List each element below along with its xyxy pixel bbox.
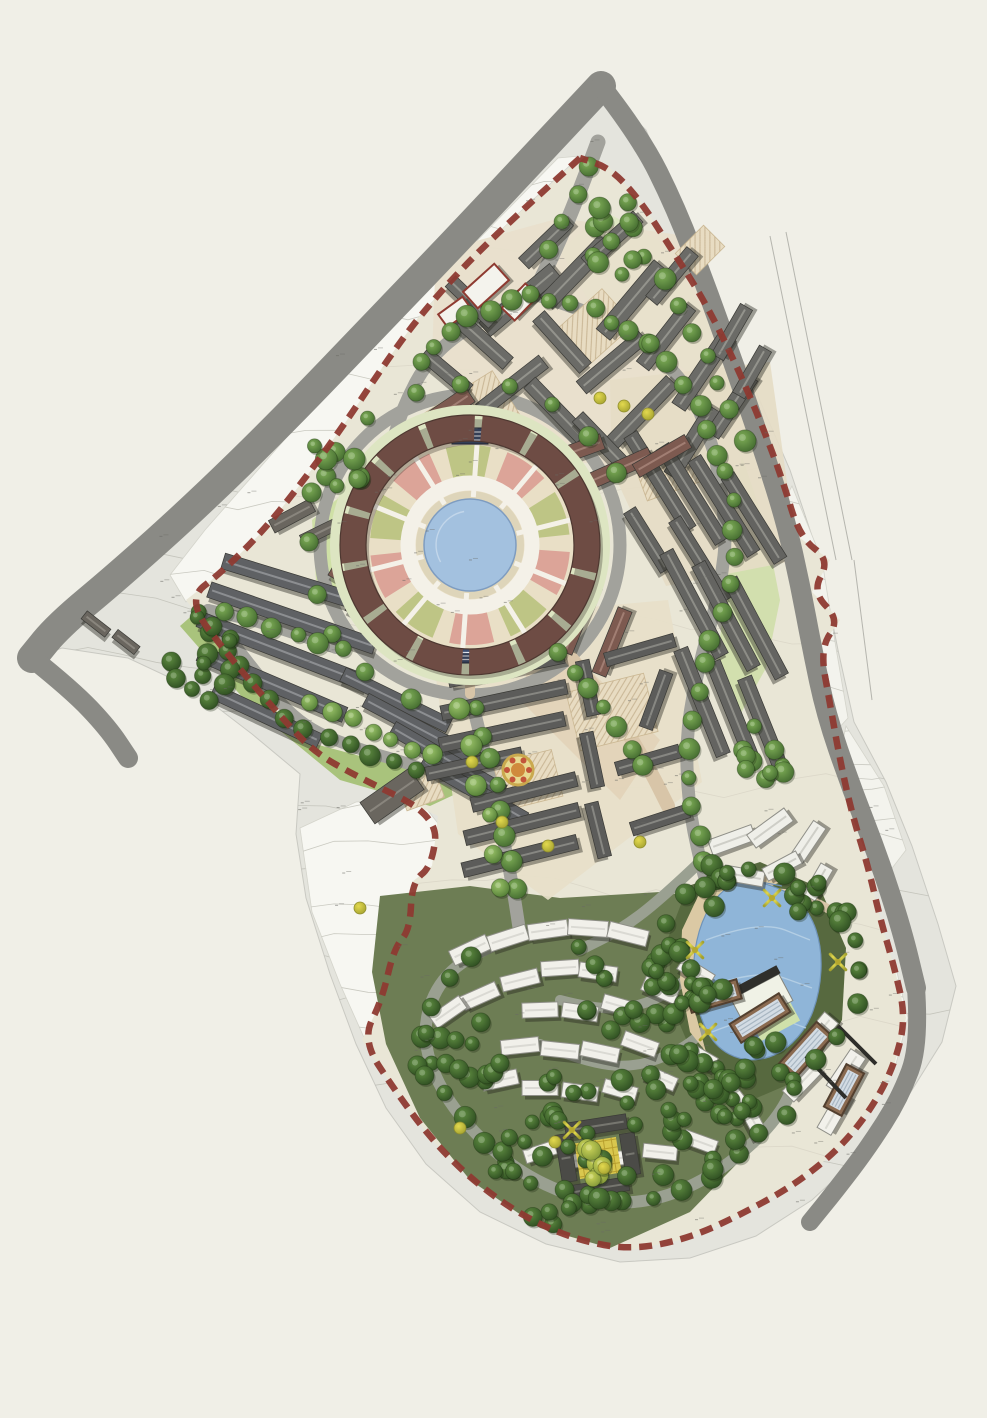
spot-marker-label [705, 576, 710, 577]
tree-highlight [664, 1105, 669, 1110]
tree-crown [200, 691, 218, 709]
tree-crown [342, 736, 359, 753]
spot-marker [655, 443, 658, 444]
spot-marker [356, 707, 359, 708]
spot-marker [499, 1130, 502, 1131]
spot-marker-label [826, 1069, 831, 1070]
spot-marker-label [305, 661, 310, 662]
tree-crown [717, 463, 733, 479]
spot-marker [337, 807, 340, 808]
spot-marker-label [559, 424, 564, 425]
tree-crown [491, 1054, 509, 1072]
tree-highlight [429, 342, 434, 347]
tree-highlight [695, 830, 701, 836]
tree-highlight [557, 217, 562, 222]
tree-crown [669, 1045, 688, 1064]
spot-marker [425, 1040, 428, 1041]
tree-crown [741, 862, 756, 877]
tree-crown [681, 770, 696, 785]
tree-highlight [618, 270, 623, 275]
central-plaza [330, 405, 610, 685]
spot-marker-label [728, 1018, 733, 1019]
spot-marker-label [398, 659, 403, 660]
tree-crown [162, 652, 181, 671]
tree-crown [482, 807, 497, 822]
tree-crown [699, 630, 720, 651]
tree-highlight [695, 686, 701, 692]
tree-highlight [348, 712, 354, 718]
tree-highlight [730, 1133, 736, 1139]
tree-highlight [360, 666, 366, 672]
flower-petal [510, 777, 516, 783]
tree-highlight [166, 656, 172, 662]
spot-marker [546, 925, 549, 926]
tree-highlight [753, 1127, 759, 1133]
tree-highlight [775, 1067, 781, 1073]
palm-tree [697, 1021, 719, 1043]
tree-crown [695, 653, 715, 673]
tree-highlight [713, 378, 718, 383]
spot-marker [801, 985, 804, 986]
spot-marker-label [550, 923, 555, 924]
spot-marker-label [332, 649, 337, 650]
spot-marker [183, 612, 186, 613]
tree-highlight [461, 309, 468, 316]
spot-marker-label [473, 371, 478, 372]
yellow-tree [466, 756, 478, 768]
tree-highlight [497, 1145, 503, 1151]
spot-marker-label [455, 610, 460, 611]
tree-highlight [766, 768, 771, 773]
spot-marker [680, 610, 683, 611]
spot-marker-label [568, 993, 573, 994]
spot-marker [396, 751, 399, 752]
tree-highlight [769, 744, 775, 750]
spot-marker-label [364, 728, 369, 729]
tree-highlight [491, 1167, 496, 1172]
tree-crown [646, 1080, 666, 1100]
tree-crown [734, 430, 756, 452]
spot-marker [546, 282, 549, 283]
tree-highlight [650, 1008, 656, 1014]
tree-highlight [583, 430, 589, 436]
tree-crown [359, 745, 380, 766]
tree-highlight [621, 1170, 627, 1176]
tree-highlight [623, 197, 629, 203]
tree-crown [762, 765, 777, 780]
tree-crown [589, 197, 611, 219]
tree-highlight [678, 379, 684, 385]
tree-crown [726, 548, 743, 565]
tree-highlight [445, 972, 451, 978]
tree-crown [786, 1080, 801, 1095]
yellow-tree [354, 902, 366, 914]
tree-highlight [726, 1077, 732, 1083]
spot-marker-label [643, 1025, 648, 1026]
spot-marker-label [410, 649, 415, 650]
spot-marker-label [724, 349, 729, 350]
spot-marker-label [844, 952, 849, 953]
tree-crown [323, 702, 342, 721]
tree-crown [586, 299, 604, 317]
tree-crown [441, 969, 458, 986]
tree-crown [541, 1204, 557, 1220]
spot-marker [725, 891, 728, 892]
spot-marker [796, 1201, 799, 1202]
tree-crown [828, 1028, 845, 1045]
spot-marker [549, 1069, 552, 1070]
spot-marker [765, 432, 768, 433]
building [522, 1002, 562, 1022]
spot-marker-label [530, 199, 535, 200]
tree-crown [578, 1001, 596, 1019]
spot-marker [469, 373, 472, 374]
tree-highlight [412, 765, 417, 770]
spot-marker-label [644, 682, 649, 683]
spot-marker-label [558, 1121, 563, 1122]
tree-highlight [616, 1073, 623, 1080]
tree-crown [697, 420, 716, 439]
tree-crown [602, 1021, 621, 1040]
spot-marker-label [668, 1071, 673, 1072]
tree-highlight [495, 882, 501, 888]
tree-highlight [451, 1035, 456, 1040]
tree-highlight [225, 663, 231, 669]
tree-crown [722, 520, 742, 540]
tree-highlight [353, 473, 359, 479]
tree-highlight [673, 1048, 679, 1054]
flower-center [511, 763, 525, 777]
spot-marker-label [403, 944, 408, 945]
spot-marker [402, 580, 405, 581]
spot-marker-label [425, 975, 430, 976]
spot-marker-label [346, 871, 351, 872]
tree-highlight [674, 301, 679, 306]
tree-crown [484, 845, 502, 863]
tree-highlight [781, 1109, 787, 1115]
tree-highlight [745, 1097, 750, 1102]
tree-highlight [699, 657, 705, 663]
spot-marker [480, 597, 483, 598]
spot-marker [701, 856, 704, 857]
spot-marker [840, 953, 843, 954]
tree-highlight [484, 752, 490, 758]
tree-highlight [680, 1115, 685, 1120]
spot-marker [342, 873, 345, 874]
spot-marker [640, 683, 643, 684]
tree-highlight [675, 1184, 682, 1191]
spot-marker-label [679, 774, 684, 775]
spot-marker-label [421, 382, 426, 383]
tree-crown [700, 348, 715, 363]
spot-marker [703, 1101, 706, 1102]
spot-marker-label [163, 534, 168, 535]
spot-marker [159, 536, 162, 537]
tree-highlight [493, 780, 498, 785]
tree-crown [618, 400, 630, 412]
tree-crown [617, 1166, 636, 1185]
tree-crown [745, 1037, 763, 1055]
tree-crown [633, 755, 653, 775]
spot-marker-label [267, 568, 272, 569]
tree-highlight [202, 647, 209, 654]
tree-highlight [687, 327, 693, 333]
tree-crown [426, 339, 441, 354]
tree-highlight [327, 629, 333, 635]
plaza-pond [424, 499, 516, 591]
spot-marker-label [589, 728, 594, 729]
tree-crown [491, 879, 509, 897]
tree-crown [646, 1191, 660, 1205]
palm-tree [761, 887, 783, 909]
spot-marker [437, 604, 440, 605]
tree-highlight [478, 1136, 485, 1143]
tree-highlight [814, 878, 819, 883]
tree-highlight [472, 703, 477, 708]
tree-highlight [509, 1166, 514, 1171]
tree-highlight [730, 551, 736, 557]
flower-circle [503, 755, 533, 785]
spot-marker-label [305, 801, 310, 802]
spot-marker-label [833, 633, 838, 634]
tree-crown [302, 483, 321, 502]
spot-marker-label [463, 438, 468, 439]
spot-marker [778, 833, 781, 834]
tree-crown [567, 665, 583, 681]
tree-highlight [346, 739, 351, 744]
tree-highlight [386, 735, 391, 740]
tree-crown [496, 816, 508, 828]
tree-crown [335, 640, 351, 656]
spot-marker [515, 1014, 518, 1015]
tree-highlight [630, 1120, 635, 1125]
spot-marker [224, 688, 227, 689]
tree-highlight [637, 759, 644, 766]
spot-marker [639, 1027, 642, 1028]
tree-crown [456, 305, 478, 327]
tree-highlight [696, 981, 702, 987]
palm-center [569, 1127, 575, 1133]
spot-marker [387, 476, 390, 477]
spot-marker-label [745, 463, 750, 464]
tree-crown [829, 911, 851, 933]
tree-highlight [695, 399, 702, 406]
tree-crown [344, 709, 361, 726]
spot-marker-label [796, 1131, 801, 1132]
spot-marker-label [559, 473, 564, 474]
tree-highlight [723, 868, 728, 873]
flower-petal [521, 777, 527, 783]
tree-highlight [327, 706, 333, 712]
tree-crown [291, 627, 306, 642]
tree-highlight [716, 983, 723, 990]
tree-highlight [673, 945, 680, 952]
tree-highlight [446, 326, 452, 332]
master-plan-svg [0, 0, 987, 1418]
spot-marker [555, 474, 558, 475]
spot-marker [417, 383, 420, 384]
tree-crown [561, 1200, 576, 1215]
tree-highlight [725, 578, 731, 584]
tree-highlight [477, 731, 483, 737]
tree-crown [261, 618, 281, 638]
spot-marker [600, 236, 603, 237]
spot-marker [415, 1050, 418, 1051]
spot-marker [710, 413, 713, 414]
tree-crown [307, 439, 321, 453]
spot-marker [720, 351, 723, 352]
spot-marker-label [769, 809, 774, 810]
tree-highlight [456, 379, 461, 384]
spot-marker [250, 647, 253, 648]
spot-marker [360, 729, 363, 730]
flower-petal [521, 757, 527, 763]
spot-marker-label [419, 1048, 424, 1049]
spot-marker [232, 599, 235, 600]
tree-highlight [730, 496, 735, 501]
spot-marker-label [655, 1172, 660, 1173]
tree-crown [649, 964, 664, 979]
tree-crown [493, 825, 515, 847]
spot-marker-label [210, 689, 215, 690]
spot-marker [774, 959, 777, 960]
tree-highlight [852, 997, 858, 1003]
spot-marker [636, 213, 639, 214]
spot-marker-label [222, 504, 227, 505]
tree-highlight [505, 855, 512, 862]
spot-marker-label [484, 596, 489, 597]
tree-crown [571, 939, 586, 954]
spot-marker [741, 465, 744, 466]
tree-highlight [645, 1069, 651, 1075]
tree-highlight [548, 400, 553, 405]
spot-marker-label [704, 1045, 709, 1046]
spot-marker-label [446, 373, 451, 374]
spot-marker-label [734, 1030, 739, 1031]
spot-marker-label [594, 520, 599, 521]
spot-marker-label [874, 1008, 879, 1009]
tree-crown [694, 877, 715, 898]
tree-highlight [724, 403, 730, 409]
spot-marker [328, 651, 331, 652]
flower-petal [504, 767, 510, 773]
tree-crown [747, 719, 762, 734]
spot-marker-label [886, 1102, 891, 1103]
tree-highlight [741, 750, 747, 756]
spot-marker [394, 661, 397, 662]
tree-highlight [440, 1088, 445, 1093]
spot-marker-label [696, 523, 701, 524]
tree-crown [734, 1103, 751, 1120]
tree-highlight [660, 355, 667, 362]
spot-marker [406, 651, 409, 652]
spot-marker-label [513, 312, 518, 313]
tree-crown [811, 875, 827, 891]
spot-marker-label [833, 1080, 838, 1081]
tree-highlight [645, 338, 651, 344]
spot-marker [829, 634, 832, 635]
tree-highlight [661, 918, 667, 924]
tree-crown [674, 376, 692, 394]
roof-ridge [525, 1009, 555, 1010]
spot-marker [442, 375, 445, 376]
tree-crown [365, 724, 381, 740]
spot-marker-label [610, 359, 615, 360]
tree-highlight [204, 695, 210, 701]
tree-highlight [708, 900, 715, 907]
tree-crown [604, 315, 619, 330]
tree-crown [541, 293, 556, 308]
spot-marker [714, 1061, 717, 1062]
tree-crown [777, 1106, 796, 1125]
spot-marker-label [586, 780, 591, 781]
tree-highlight [304, 536, 310, 542]
tree-highlight [348, 452, 355, 459]
tree-crown [449, 698, 470, 719]
tree-crown [669, 941, 690, 962]
tree-crown [704, 1079, 723, 1098]
spot-marker [882, 1104, 885, 1105]
tree-crown [525, 1115, 539, 1129]
tree-crown [670, 297, 687, 314]
tree-crown [625, 1001, 643, 1019]
tree-crown [413, 353, 430, 370]
tree-highlight [701, 424, 707, 430]
spot-marker-label [818, 1141, 823, 1142]
tree-highlight [390, 756, 395, 761]
spot-marker [470, 777, 473, 778]
tree-crown [587, 252, 608, 273]
tree-crown [501, 851, 522, 872]
tree-highlight [687, 979, 692, 984]
tree-highlight [559, 1184, 565, 1190]
tree-crown [848, 933, 863, 948]
spot-marker [675, 775, 678, 776]
spot-marker-label [596, 442, 601, 443]
tree-crown [749, 1124, 767, 1142]
yellow-tree [598, 1162, 610, 1174]
spot-marker [701, 577, 704, 578]
tree-highlight [750, 722, 755, 727]
spot-marker-label [668, 782, 673, 783]
spot-marker-label [564, 226, 569, 227]
tree-highlight [564, 1142, 569, 1147]
spot-marker-label [560, 483, 565, 484]
tree-crown [356, 663, 374, 681]
spot-marker-label [805, 983, 810, 984]
tree-crown [549, 1136, 561, 1148]
tree-highlight [770, 1036, 777, 1043]
spot-marker [555, 260, 558, 261]
flower-petal [526, 767, 532, 773]
tree-highlight [310, 441, 315, 446]
tree-crown [442, 323, 460, 341]
tree-highlight [665, 940, 670, 945]
spot-marker [620, 337, 623, 338]
spot-marker-label [759, 926, 764, 927]
spot-marker [870, 807, 873, 808]
tree-crown [717, 1109, 732, 1124]
tree-highlight [583, 1189, 589, 1195]
spot-marker-label [601, 1222, 606, 1223]
tree-highlight [506, 293, 513, 300]
tree-crown [710, 376, 725, 391]
spot-marker [218, 506, 221, 507]
tree-crown [569, 185, 587, 203]
tree-crown [473, 1132, 494, 1153]
tree-crown [465, 1037, 479, 1051]
spot-marker-label [889, 828, 894, 829]
